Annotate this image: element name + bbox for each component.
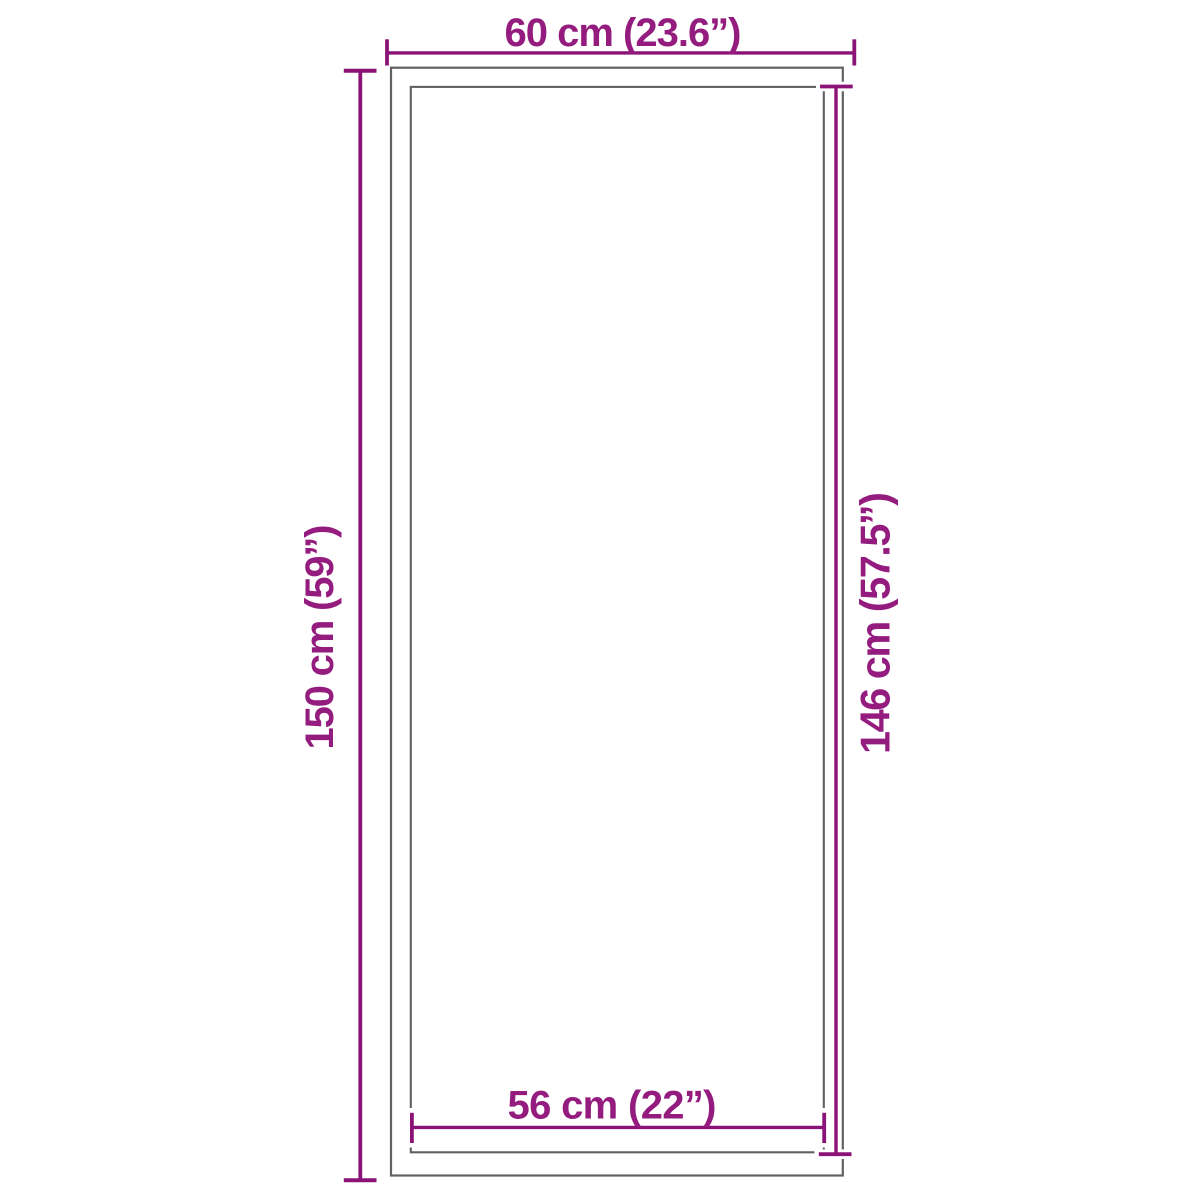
svg-text:146 cm (57.5”): 146 cm (57.5”) <box>851 492 898 754</box>
svg-text:60 cm (23.6”): 60 cm (23.6”) <box>505 11 742 55</box>
svg-text:56 cm (22”): 56 cm (22”) <box>508 1084 717 1128</box>
svg-text:150 cm (59”): 150 cm (59”) <box>298 525 342 750</box>
